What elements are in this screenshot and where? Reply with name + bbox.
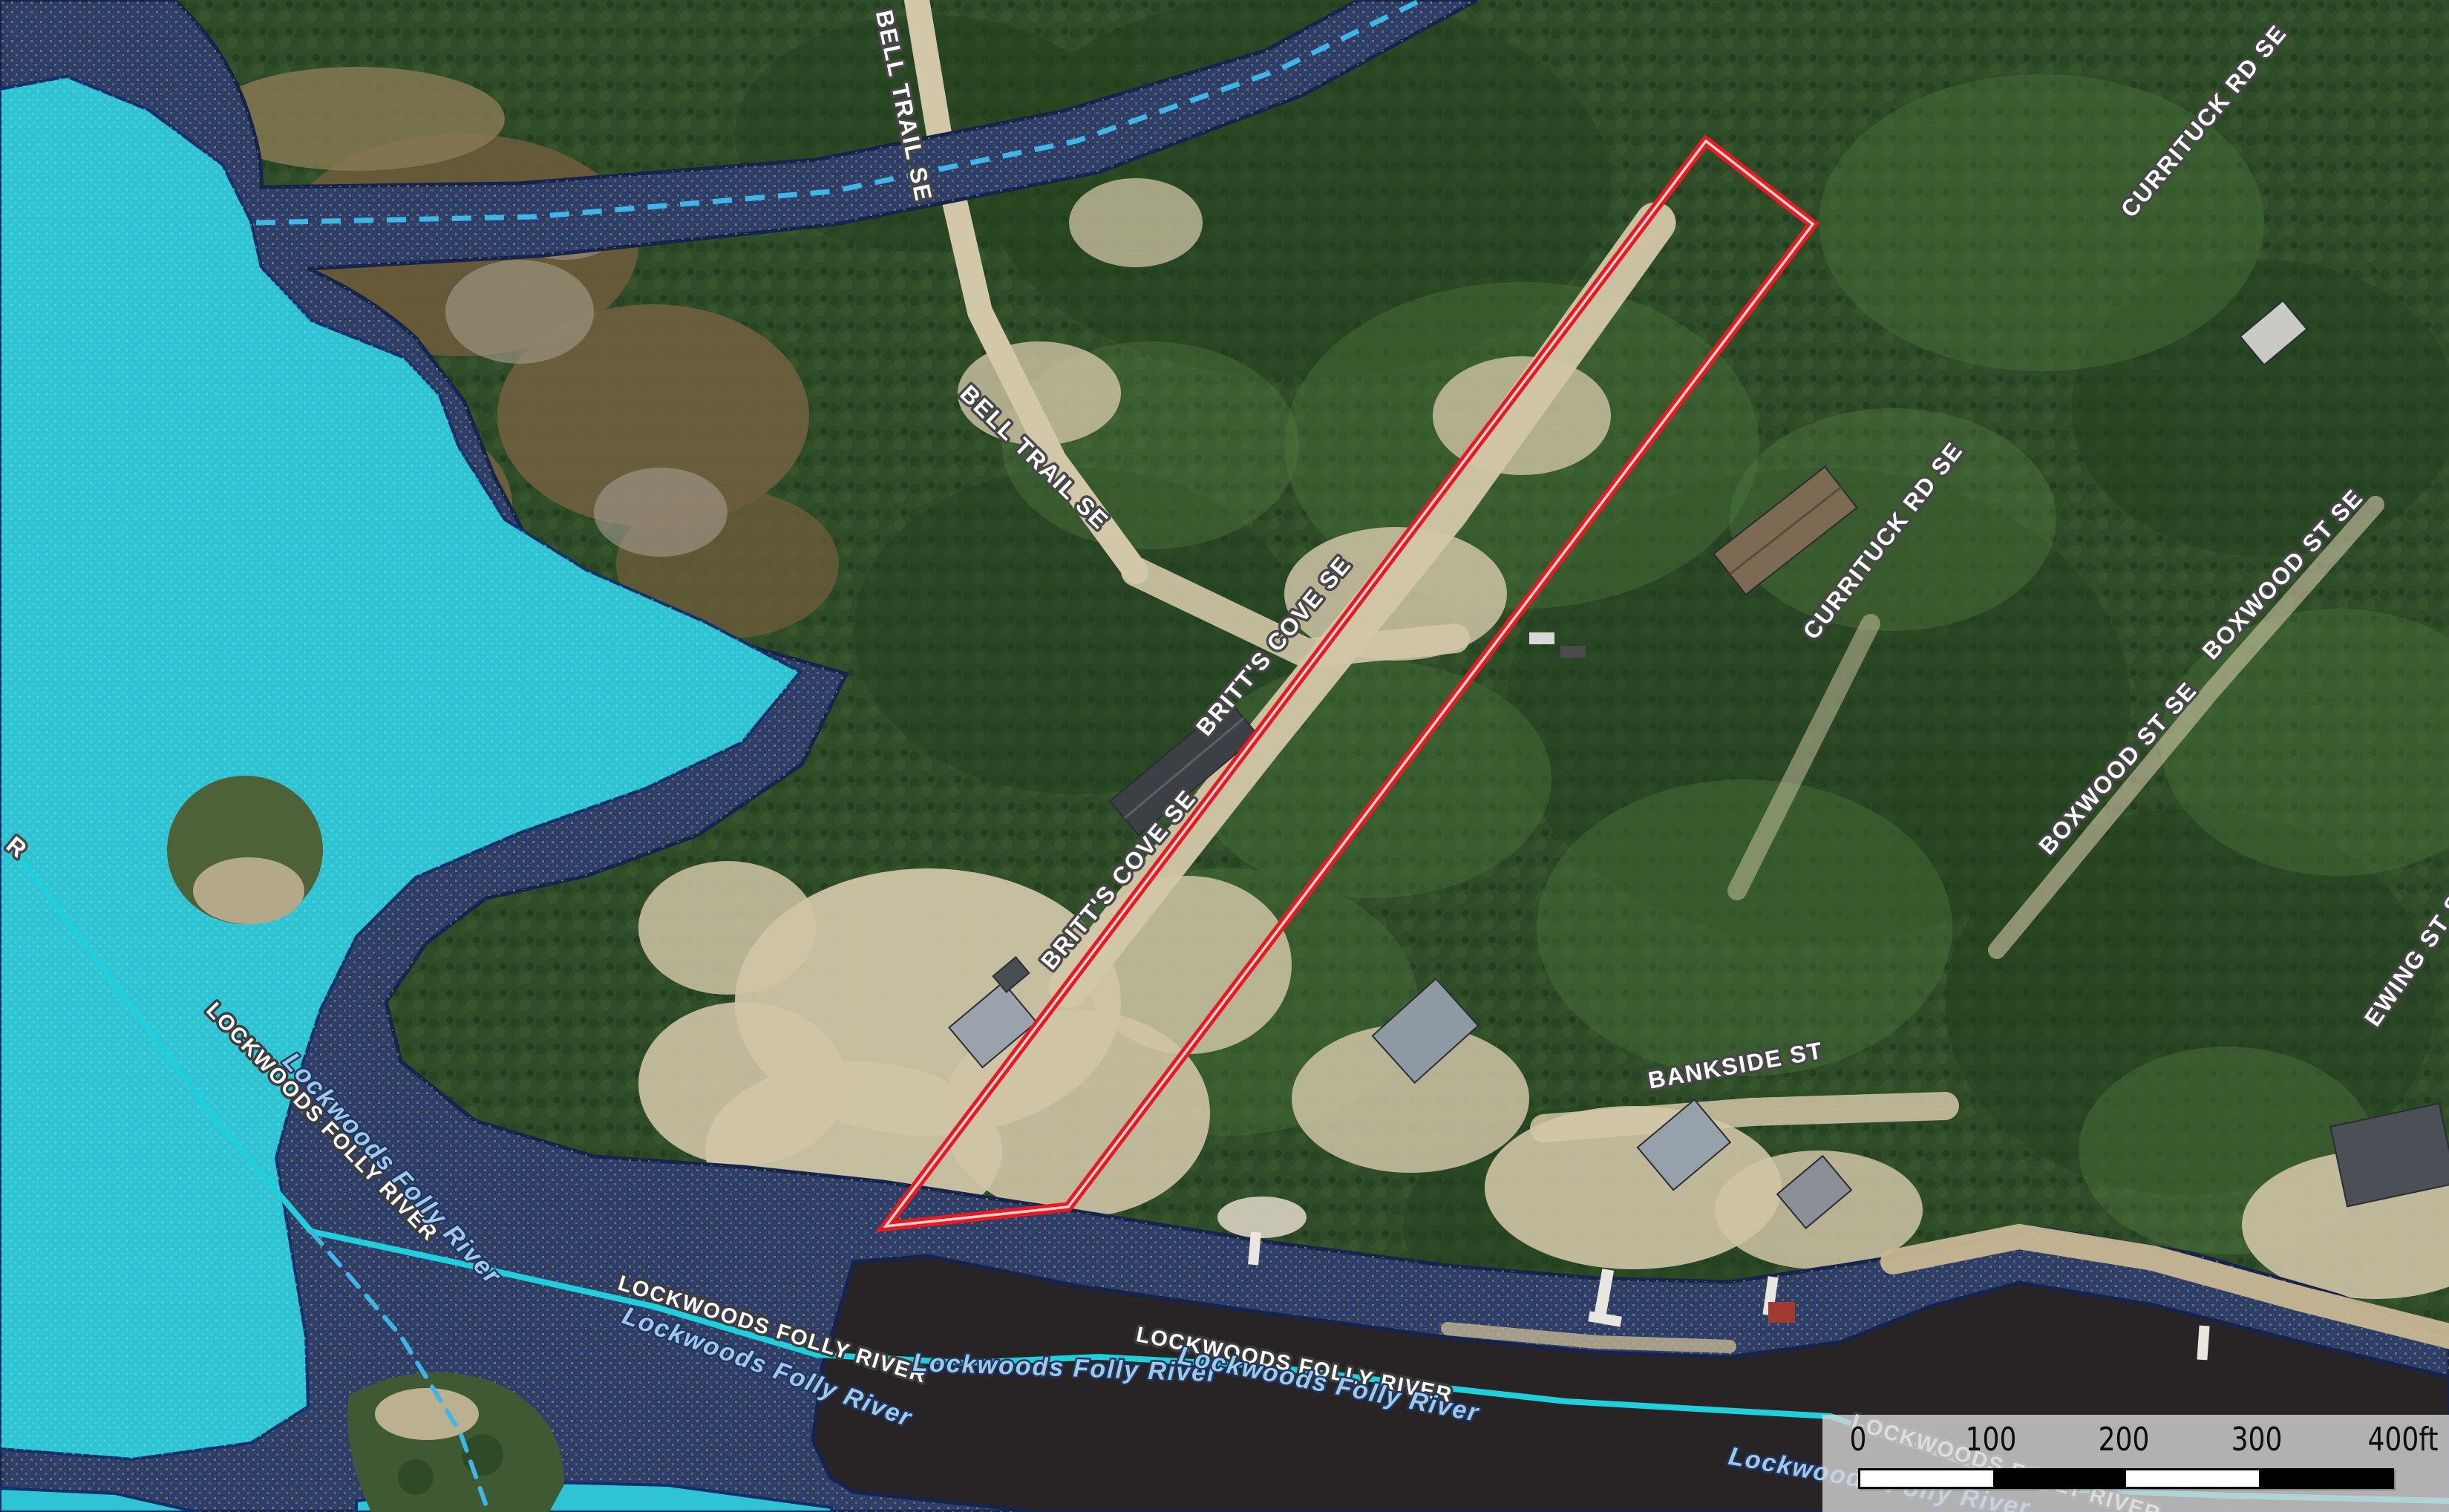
scale-tick: 0 (1850, 1421, 1867, 1459)
scale-tick: 400ft (2367, 1421, 2438, 1459)
scale-segment (2259, 1470, 2392, 1487)
scale-tick: 300 (2231, 1421, 2283, 1459)
scale-segment (1993, 1470, 2126, 1487)
scale-tick: 200 (2099, 1421, 2150, 1459)
marsh-island (167, 776, 323, 924)
scale-bar (1858, 1468, 2394, 1489)
scale-segment (1860, 1470, 1993, 1487)
aerial-map: BELL TRAIL SEBELL TRAIL SEBRITT'S COVE S… (0, 0, 2449, 1512)
scale-tick: 100 (1966, 1421, 2017, 1459)
scale-ticks: 0 100 200 300 400ft (1822, 1421, 2449, 1462)
map-viewport[interactable]: BELL TRAIL SEBELL TRAIL SEBRITT'S COVE S… (0, 0, 2449, 1512)
scale-segment (2126, 1470, 2259, 1487)
scale-bar-panel: 0 100 200 300 400ft (1822, 1415, 2449, 1512)
